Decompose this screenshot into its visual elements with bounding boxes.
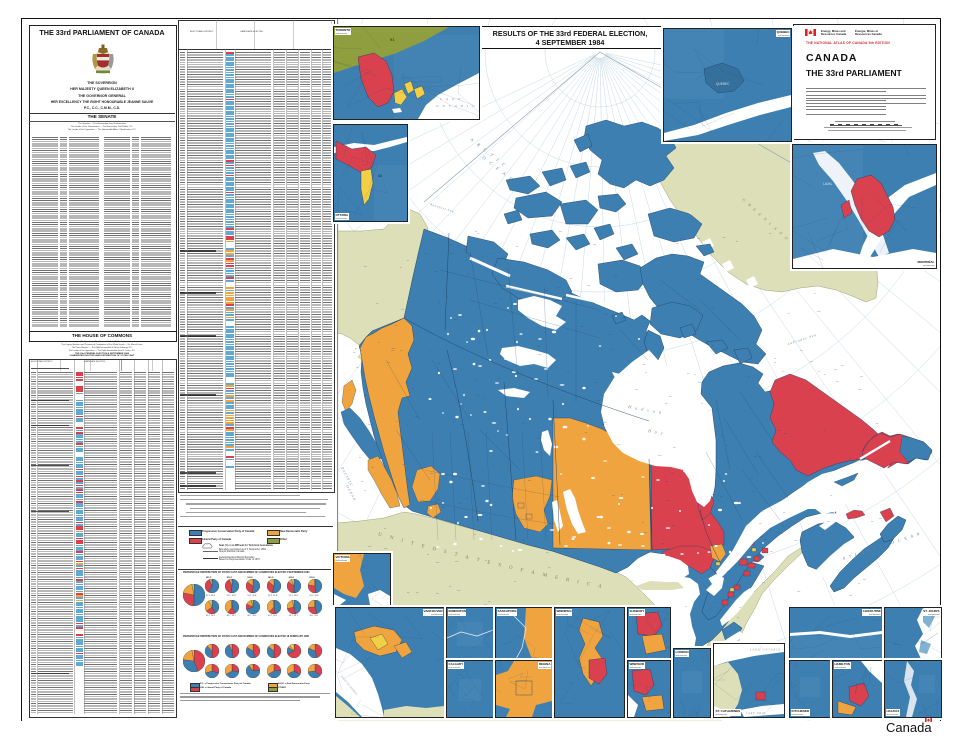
svg-text:LAKE ONTARIO: LAKE ONTARIO (749, 649, 781, 652)
svg-text:L A K E: L A K E (439, 97, 462, 101)
svg-text:QUEBEC: QUEBEC (716, 82, 730, 86)
svg-text:LAKE ERIE: LAKE ERIE (745, 712, 766, 715)
svg-text:LAVAL: LAVAL (823, 182, 833, 186)
svg-text:91: 91 (390, 37, 395, 42)
svg-text:64: 64 (378, 174, 382, 178)
svg-text:O N T A R I O: O N T A R I O (436, 104, 476, 108)
